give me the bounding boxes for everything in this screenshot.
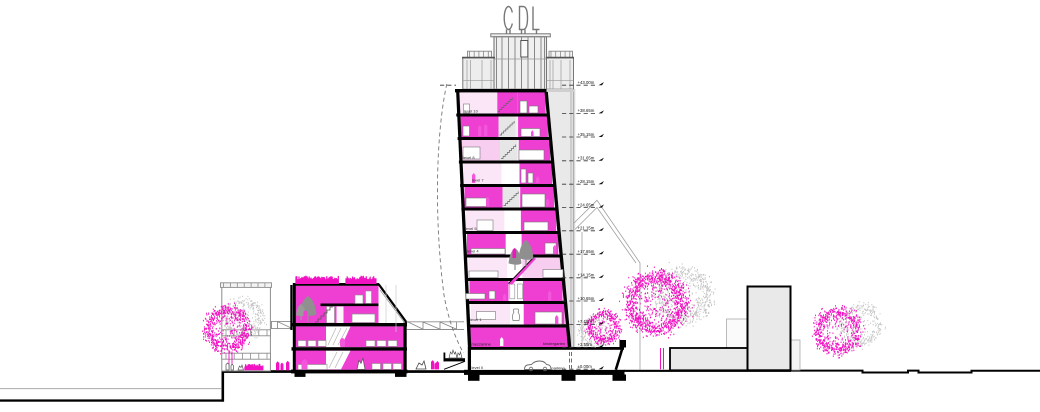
svg-text:+14.15m: +14.15m <box>578 273 595 278</box>
svg-text:mezzanine: mezzanine <box>472 342 492 347</box>
svg-text:+17.65m: +17.65m <box>578 249 595 254</box>
svg-text:+7.15m: +7.15m <box>578 319 593 324</box>
svg-text:+24.65m: +24.65m <box>578 202 595 207</box>
svg-text:level 5: level 5 <box>465 226 477 231</box>
svg-text:level 7: level 7 <box>472 178 484 183</box>
svg-text:level 8: level 8 <box>463 155 475 160</box>
svg-text:level 1: level 1 <box>470 317 482 322</box>
svg-text:level 4: level 4 <box>467 249 479 254</box>
svg-text:level 0: level 0 <box>472 365 484 370</box>
svg-text:+10.65m: +10.65m <box>578 296 595 301</box>
svg-text:±0.00m: ±0.00m <box>578 364 593 369</box>
svg-text:+21.15m: +21.15m <box>578 226 595 231</box>
svg-text:+28.15m: +28.15m <box>578 179 595 184</box>
svg-text:+43.00m: +43.00m <box>578 80 595 85</box>
svg-text:+35.15m: +35.15m <box>578 132 595 137</box>
svg-text:kindergarten: kindergarten <box>543 341 565 346</box>
svg-text:level 10: level 10 <box>464 109 479 114</box>
svg-text:+3.55m: +3.55m <box>578 342 593 347</box>
svg-text:parking: parking <box>552 366 565 371</box>
svg-text:+38.65m: +38.65m <box>578 108 595 113</box>
svg-text:+31.65m: +31.65m <box>578 156 595 161</box>
